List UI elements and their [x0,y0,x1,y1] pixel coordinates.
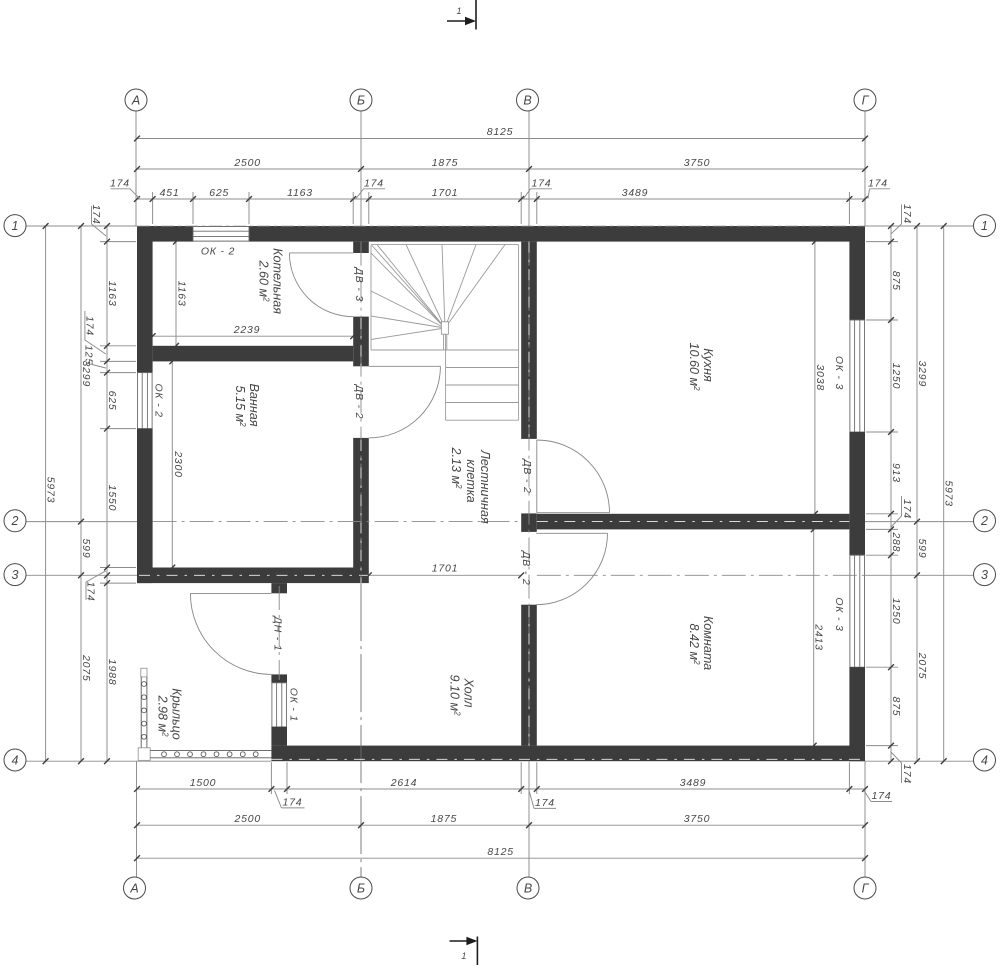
svg-text:5973: 5973 [943,480,955,507]
svg-text:1701: 1701 [432,187,459,199]
svg-text:875: 875 [890,696,902,716]
svg-text:ДН - 1: ДН - 1 [272,615,284,651]
svg-text:1550: 1550 [106,485,118,512]
svg-text:1: 1 [456,6,461,16]
svg-text:ДВ - 2: ДВ - 2 [521,458,533,493]
svg-text:2239: 2239 [233,324,261,336]
svg-text:1701: 1701 [432,563,459,575]
svg-text:Лестничная: Лестничная [478,449,492,524]
svg-text:ОК - 2: ОК - 2 [153,383,165,417]
svg-text:9.10 м2: 9.10 м2 [448,674,462,716]
svg-text:1875: 1875 [431,813,458,825]
svg-text:В: В [523,93,531,107]
svg-text:174: 174 [868,177,888,189]
svg-text:Котельная: Котельная [271,248,285,314]
svg-text:3489: 3489 [622,187,649,199]
svg-text:174: 174 [532,177,552,189]
svg-text:2300: 2300 [172,450,184,478]
svg-text:Б: Б [357,881,365,895]
svg-text:клетка: клетка [464,459,478,502]
svg-text:5.15 м2: 5.15 м2 [233,385,247,427]
svg-text:1163: 1163 [175,281,187,307]
svg-text:625: 625 [106,391,118,411]
svg-text:ДВ - 3: ДВ - 3 [353,267,365,302]
svg-text:3750: 3750 [684,157,711,169]
svg-text:2075: 2075 [916,652,928,680]
svg-text:174: 174 [872,790,892,802]
svg-text:599: 599 [916,539,928,559]
svg-text:451: 451 [160,187,180,199]
svg-text:ОК - 2: ОК - 2 [201,246,235,258]
svg-text:2500: 2500 [234,813,262,825]
svg-text:2500: 2500 [233,157,261,169]
svg-text:Холл: Холл [462,677,476,707]
svg-text:ОК - 3: ОК - 3 [833,356,845,390]
svg-text:174: 174 [901,499,913,519]
svg-text:8125: 8125 [487,846,514,858]
svg-text:Кухня: Кухня [701,348,715,382]
svg-text:174: 174 [283,797,303,809]
svg-text:3750: 3750 [684,813,711,825]
svg-text:288: 288 [890,531,902,552]
svg-text:913: 913 [890,463,902,483]
svg-text:1500: 1500 [190,777,217,789]
svg-text:1988: 1988 [106,659,118,686]
svg-text:2.60 м2: 2.60 м2 [257,259,271,302]
svg-text:2075: 2075 [80,654,92,682]
svg-text:1163: 1163 [287,187,313,199]
svg-text:3299: 3299 [916,361,928,388]
svg-text:Г: Г [862,93,870,107]
svg-text:3299: 3299 [80,361,92,388]
svg-text:3: 3 [981,568,988,582]
svg-text:174: 174 [364,177,384,189]
svg-text:ОК - 3: ОК - 3 [833,597,845,631]
svg-text:8.42 м2: 8.42 м2 [687,623,701,665]
svg-text:10.60 м2: 10.60 м2 [687,342,701,391]
svg-text:1163: 1163 [106,281,118,307]
svg-text:3: 3 [12,568,19,582]
svg-text:Ванная: Ванная [247,384,261,427]
svg-text:174: 174 [535,797,555,809]
svg-text:1: 1 [461,951,466,961]
svg-text:3038: 3038 [814,364,826,391]
svg-text:Комната: Комната [701,616,715,670]
svg-text:Г: Г [862,881,870,895]
svg-text:2413: 2413 [813,623,825,651]
svg-text:Б: Б [357,93,365,107]
svg-text:1250: 1250 [890,598,902,625]
svg-text:5973: 5973 [45,477,57,504]
svg-text:174: 174 [901,204,913,224]
svg-text:В: В [524,881,532,895]
svg-text:Крыльцо: Крыльцо [169,688,183,740]
svg-text:875: 875 [890,271,902,291]
svg-text:174: 174 [901,764,913,784]
svg-text:ДВ - 2: ДВ - 2 [353,384,365,419]
svg-text:2: 2 [11,514,19,528]
svg-text:599: 599 [80,539,92,559]
svg-text:1875: 1875 [432,157,459,169]
svg-text:ОК - 1: ОК - 1 [288,688,300,722]
svg-text:ДВ - 2: ДВ - 2 [520,550,532,585]
svg-text:1250: 1250 [890,363,902,390]
svg-text:2.98 м2: 2.98 м2 [155,694,169,737]
svg-text:1: 1 [12,219,19,233]
svg-text:4: 4 [981,753,988,767]
svg-text:1: 1 [981,219,988,233]
svg-text:4: 4 [12,753,19,767]
svg-text:А: А [129,881,138,895]
svg-text:8125: 8125 [487,126,514,138]
svg-text:2614: 2614 [390,777,418,789]
svg-text:3489: 3489 [680,777,707,789]
svg-text:174: 174 [110,177,130,189]
svg-text:2.13 м2: 2.13 м2 [449,446,463,489]
svg-text:2: 2 [980,514,988,528]
svg-text:625: 625 [209,187,229,199]
svg-text:А: А [131,93,140,107]
